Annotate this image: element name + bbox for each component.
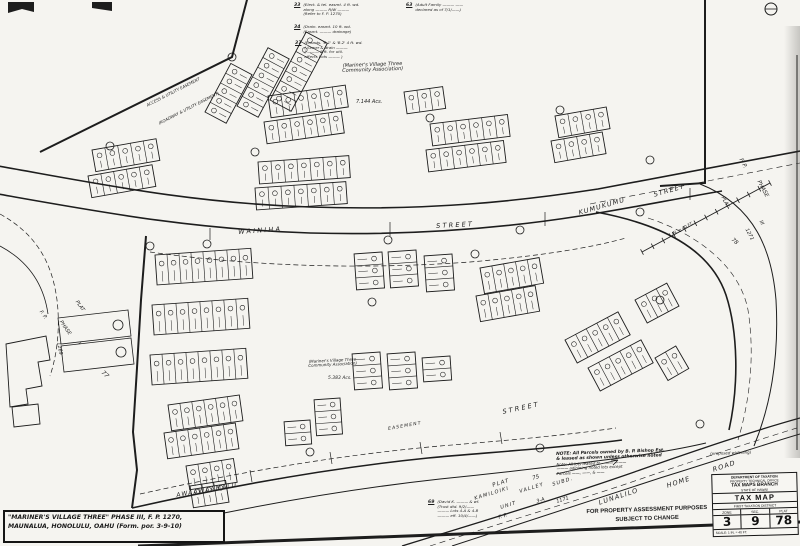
- unit-number-circle: [594, 369, 600, 375]
- unit-number-circle: [598, 112, 604, 118]
- unit-center-tick: [427, 261, 437, 262]
- parcel-row: [480, 258, 544, 294]
- unit-center-tick: [391, 257, 401, 258]
- unit-number-circle: [263, 62, 269, 68]
- unit-center-tick: [231, 438, 232, 447]
- unit-center-tick: [198, 269, 199, 279]
- parcel-divider: [423, 368, 451, 370]
- parcel-divider: [430, 88, 433, 110]
- unit-center-tick: [357, 383, 367, 384]
- unit-number-circle: [585, 114, 591, 120]
- unit-center-tick: [393, 281, 403, 282]
- parcel-divider: [589, 134, 593, 156]
- unit-center-tick: [328, 100, 329, 107]
- unit-number-circle: [190, 358, 195, 363]
- parcel-divider: [389, 376, 417, 378]
- parcel-divider: [198, 352, 200, 382]
- unit-number-circle: [404, 356, 409, 361]
- parcel-divider: [656, 289, 668, 312]
- unit-center-tick: [356, 371, 366, 372]
- unit-number-circle: [434, 91, 439, 96]
- unit-center-tick: [667, 367, 671, 375]
- zone-value: 3: [713, 515, 742, 528]
- unit-number-circle: [435, 127, 440, 132]
- parcel-divider: [527, 260, 532, 286]
- survey-hatch-tick: [747, 192, 750, 197]
- parcel-divider: [315, 115, 318, 137]
- unit-center-tick: [502, 127, 503, 134]
- note-bishop-text: NOTE: All Parcels owned by B. P. Bishop …: [556, 448, 666, 476]
- unit-center-tick: [246, 265, 247, 275]
- parcel-row: [92, 139, 160, 172]
- parcel-divider: [227, 397, 231, 423]
- unit-center-tick: [390, 359, 400, 360]
- survey-hatch-tick: [715, 209, 718, 214]
- unit-center-tick: [598, 339, 602, 347]
- parcel-divider: [323, 157, 325, 179]
- unit-number-circle: [204, 432, 209, 437]
- parcel-row: [314, 398, 342, 436]
- unit-number-circle: [281, 86, 287, 92]
- unit-number-circle: [324, 92, 329, 97]
- unit-center-tick: [272, 68, 279, 72]
- unit-center-tick: [464, 132, 465, 139]
- unit-center-tick: [251, 107, 258, 111]
- unit-center-tick: [186, 269, 187, 279]
- parcel-divider: [216, 398, 220, 424]
- parcel-row: [476, 286, 540, 322]
- unit-number-circle: [262, 166, 267, 171]
- parcel-divider: [646, 294, 658, 317]
- parcel-divider: [388, 364, 416, 366]
- unit-number-circle: [332, 426, 337, 431]
- parcel-divider: [200, 428, 204, 454]
- unit-number-circle: [569, 141, 575, 147]
- unit-number-circle: [269, 125, 274, 130]
- unit-number-circle: [148, 144, 154, 150]
- unit-number-circle: [311, 188, 316, 193]
- parcel-row: [388, 250, 418, 288]
- unit-number-circle: [288, 164, 293, 169]
- parcel-divider: [492, 266, 497, 292]
- parcel-row: [551, 132, 606, 163]
- parcel-divider: [126, 169, 130, 191]
- boundary-upper-west: [40, 0, 248, 152]
- parcel-divider: [215, 251, 217, 281]
- unit-center-tick: [194, 478, 195, 486]
- unit-number-circle: [298, 189, 303, 194]
- parcel-divider: [164, 304, 166, 334]
- scan-shadow: [784, 26, 800, 458]
- unit-center-tick: [222, 267, 223, 277]
- unit-center-tick: [484, 309, 486, 318]
- parcel-divider: [281, 186, 283, 208]
- parcel-divider: [609, 357, 621, 380]
- unit-number-circle: [214, 466, 219, 471]
- unit-center-tick: [230, 94, 237, 98]
- note-34: 34 (Drain. easmt. 10 ft. wd. (Easmt. ———…: [294, 25, 351, 34]
- unit-number-circle: [221, 88, 227, 94]
- unit-number-circle: [371, 380, 376, 385]
- unit-center-tick: [300, 72, 307, 76]
- building-footprint-annex: [12, 404, 40, 427]
- unit-number-circle: [307, 119, 312, 124]
- parcel-divider: [316, 422, 342, 424]
- unit-center-tick: [425, 101, 426, 108]
- unit-center-tick: [611, 372, 615, 380]
- unit-number-circle: [110, 150, 116, 156]
- street-lot-circle: [516, 226, 524, 234]
- unit-center-tick: [219, 113, 226, 117]
- unit-center-tick: [139, 154, 140, 161]
- unit-number-circle: [482, 147, 487, 152]
- unit-center-tick: [392, 269, 402, 270]
- unit-number-circle: [202, 358, 207, 363]
- parcel-divider: [203, 252, 205, 282]
- boundary-lower-west: [132, 236, 146, 508]
- unit-number-circle: [178, 359, 183, 364]
- parcel-divider: [236, 299, 238, 329]
- parcel-row: [422, 356, 452, 382]
- parcel-row: [387, 352, 417, 390]
- unit-center-tick: [305, 62, 312, 66]
- parcel-row: [404, 87, 446, 114]
- street-lot-circle: [203, 240, 211, 248]
- parcel-divider: [597, 323, 609, 346]
- unit-number-circle: [226, 78, 232, 84]
- unit-center-tick: [276, 107, 277, 114]
- unit-number-circle: [592, 330, 598, 336]
- unit-center-tick: [302, 103, 303, 110]
- unit-center-tick: [318, 417, 327, 418]
- parcel-divider: [328, 113, 331, 135]
- unit-number-circle: [180, 436, 185, 441]
- unit-number-circle: [156, 311, 161, 316]
- note-34-number: 34: [294, 25, 300, 34]
- street-lot-circle: [384, 236, 392, 244]
- unit-number-circle: [327, 161, 332, 166]
- unit-number-circle: [456, 150, 461, 155]
- note-33-number: 33: [294, 3, 300, 17]
- unit-number-circle: [259, 192, 264, 197]
- parcel-divider: [607, 317, 619, 340]
- unit-number-circle: [532, 264, 538, 270]
- unit-center-tick: [577, 350, 581, 358]
- unit-number-circle: [190, 469, 195, 474]
- street-lot-circle: [556, 106, 564, 114]
- unit-center-tick: [224, 104, 231, 108]
- unit-number-circle: [604, 363, 610, 369]
- unit-center-tick: [434, 161, 435, 168]
- unit-number-circle: [232, 401, 237, 406]
- parcel-divider: [212, 301, 214, 331]
- parcel-divider: [192, 402, 196, 428]
- unit-center-tick: [277, 59, 284, 63]
- unit-number-circle: [573, 116, 579, 122]
- unit-number-circle: [204, 308, 209, 313]
- unit-center-tick: [451, 134, 452, 141]
- parcel-row-outline: [424, 254, 454, 292]
- parcel-divider: [577, 136, 581, 158]
- unit-number-circle: [208, 404, 213, 409]
- parcel-row: [268, 85, 348, 118]
- parcel-divider: [227, 250, 229, 280]
- unit-number-circle: [219, 257, 224, 262]
- parcel-divider: [488, 294, 493, 320]
- parcel-divider: [204, 400, 208, 426]
- unit-number-circle: [594, 137, 600, 143]
- unit-number-circle: [243, 101, 249, 107]
- note-63-number: 63: [406, 3, 412, 12]
- unit-number-circle: [168, 310, 173, 315]
- unit-number-circle: [641, 301, 647, 307]
- unit-center-tick: [642, 355, 646, 363]
- unit-number-circle: [406, 380, 411, 385]
- parcel-divider: [333, 183, 335, 205]
- unit-center-tick: [243, 315, 244, 325]
- unit-number-circle: [671, 352, 678, 359]
- unit-center-tick: [210, 495, 211, 502]
- unit-number-circle: [144, 170, 150, 176]
- unit-center-tick: [152, 152, 153, 159]
- parcel-row-outline: [588, 340, 653, 391]
- unit-number-circle: [337, 186, 342, 191]
- parcel-divider: [336, 157, 338, 179]
- unit-center-tick: [412, 103, 413, 110]
- parcel-divider: [599, 362, 611, 385]
- unit-center-tick: [101, 161, 102, 168]
- unit-number-circle: [166, 360, 171, 365]
- title-block: DEPARTMENT OF TAXATION PROPERTY TECHNICA…: [711, 472, 799, 537]
- unit-center-tick: [340, 98, 341, 105]
- unit-number-circle: [443, 151, 448, 156]
- unit-number-circle: [243, 255, 248, 260]
- unit-number-circle: [581, 139, 587, 145]
- parcel-divider: [332, 87, 335, 109]
- unit-number-circle: [571, 341, 577, 347]
- unit-number-circle: [602, 324, 608, 330]
- parcel-divider: [281, 94, 284, 116]
- unit-number-circle: [372, 268, 377, 273]
- unit-number-circle: [168, 437, 173, 442]
- unit-center-tick: [602, 120, 603, 127]
- parcel-divider: [630, 345, 642, 368]
- unit-center-tick: [588, 344, 592, 352]
- parcel-divider: [523, 288, 528, 314]
- parcel-divider: [593, 109, 597, 131]
- parcel-divider: [271, 161, 273, 183]
- unit-center-tick: [609, 333, 613, 341]
- street-lot-circle: [646, 156, 654, 164]
- unit-center-tick: [240, 74, 247, 78]
- unit-number-circle: [231, 68, 237, 74]
- parcel-divider: [456, 121, 459, 143]
- parcel-divider: [315, 410, 341, 412]
- unit-center-tick: [324, 126, 325, 133]
- unit-number-circle: [504, 296, 510, 302]
- note-69: 69 (David K. ——— & wf. (Trust dtd. 9/2/—…: [428, 500, 479, 519]
- unit-number-circle: [272, 191, 277, 196]
- unit-center-tick: [576, 125, 577, 132]
- unit-center-tick: [241, 365, 242, 375]
- unit-number-circle: [300, 424, 305, 429]
- note-69-number: 69: [428, 500, 434, 519]
- unit-center-tick: [391, 371, 401, 372]
- left-approach-line: [0, 246, 48, 314]
- unit-center-tick: [647, 310, 651, 318]
- unit-center-tick: [217, 367, 218, 377]
- unit-center-tick: [473, 156, 474, 163]
- parcel-divider: [162, 354, 164, 384]
- unit-center-tick: [632, 361, 636, 369]
- building-footprint: [6, 336, 50, 407]
- unit-number-circle: [636, 346, 642, 352]
- note-bishop-estate: NOTE: All Parcels owned by B. P. Bishop …: [556, 448, 666, 476]
- unit-center-tick: [113, 159, 114, 166]
- unit-center-tick: [560, 152, 561, 159]
- unit-center-tick: [159, 321, 160, 331]
- road-edge-awaawaamalu-upper: [132, 440, 622, 508]
- unit-center-tick: [357, 259, 367, 260]
- unit-center-tick: [198, 497, 199, 504]
- unit-number-circle: [469, 148, 474, 153]
- unit-number-circle: [615, 358, 621, 364]
- unit-center-tick: [181, 369, 182, 379]
- unit-number-circle: [320, 118, 325, 123]
- unit-number-circle: [333, 116, 338, 121]
- unit-number-circle: [228, 429, 233, 434]
- parcel-divider: [297, 159, 299, 181]
- unit-center-tick: [317, 405, 326, 406]
- unit-number-circle: [258, 72, 264, 78]
- unit-number-circle: [499, 119, 504, 124]
- unit-number-circle: [406, 266, 411, 271]
- parcel-row-outline: [565, 312, 630, 363]
- parcel-divider: [143, 141, 147, 163]
- unit-center-tick: [234, 266, 235, 276]
- survey-hatch-tick: [694, 221, 697, 226]
- unit-number-circle: [216, 307, 221, 312]
- parcel-divider: [465, 145, 468, 167]
- parcel-row: [88, 165, 156, 198]
- parcel-divider: [515, 262, 520, 288]
- unit-number-circle: [118, 174, 124, 180]
- unit-number-circle: [294, 121, 299, 126]
- unit-number-circle: [196, 406, 201, 411]
- parcel-row: [284, 420, 312, 446]
- note-34-text: (Drain. easmt. 10 ft. wd. (Easmt. ——— dr…: [303, 25, 351, 34]
- unit-number-circle: [330, 402, 335, 407]
- street-lot-circle: [368, 298, 376, 306]
- unit-number-circle: [154, 361, 159, 366]
- parcel-row: [588, 340, 653, 391]
- unit-center-tick: [196, 443, 197, 452]
- parcel-divider: [105, 148, 109, 170]
- unit-center-tick: [429, 285, 439, 286]
- unit-center-tick: [488, 281, 490, 290]
- unit-center-tick: [288, 439, 297, 440]
- unit-center-tick: [272, 133, 273, 140]
- plat-value: 78: [770, 514, 798, 527]
- unit-center-tick: [162, 271, 163, 281]
- parcel-divider: [390, 274, 418, 276]
- unit-center-tick: [536, 273, 538, 282]
- unit-number-circle: [253, 82, 259, 88]
- parcel-divider: [307, 91, 310, 113]
- unit-number-circle: [282, 123, 287, 128]
- map-linework: [0, 0, 800, 546]
- parcel-divider: [439, 148, 442, 170]
- parcel-divider: [443, 122, 446, 144]
- parcel-divider: [188, 430, 192, 456]
- parcel-row-outline: [314, 398, 342, 436]
- parcel-divider: [469, 119, 472, 141]
- unit-center-tick: [208, 441, 209, 450]
- parcel-divider: [620, 351, 632, 374]
- street-lot-circle: [146, 242, 154, 250]
- unit-number-circle: [226, 464, 231, 469]
- unit-number-circle: [184, 408, 189, 413]
- unit-center-tick: [176, 418, 177, 427]
- survey-hatch-tick: [737, 198, 740, 203]
- parcel-divider: [586, 329, 598, 352]
- unit-number-circle: [516, 294, 522, 300]
- parcel-divider: [180, 403, 184, 429]
- parcel-divider: [294, 92, 297, 114]
- map-title-line1: "MARINER'S VILLAGE THREE" PHASE III, F. …: [8, 514, 220, 523]
- unit-center-tick: [218, 474, 219, 482]
- unit-number-circle: [484, 272, 490, 278]
- unit-number-circle: [441, 258, 446, 263]
- unit-center-tick: [223, 412, 224, 421]
- unit-center-tick: [174, 270, 175, 280]
- unit-center-tick: [438, 99, 439, 106]
- unit-center-tick: [490, 129, 491, 136]
- road-edge-right-left: [596, 212, 736, 430]
- unit-center-tick: [289, 105, 290, 112]
- unit-center-tick: [311, 128, 312, 135]
- unit-number-circle: [106, 176, 112, 182]
- acreage-top: 7.144 Acs.: [356, 100, 382, 105]
- street-lot-circle: [636, 208, 644, 216]
- unit-center-tick: [477, 130, 478, 137]
- unit-center-tick: [184, 445, 185, 454]
- unit-number-circle: [180, 309, 185, 314]
- unit-number-circle: [528, 292, 534, 298]
- parcel-divider: [239, 249, 241, 279]
- unit-number-circle: [314, 162, 319, 167]
- unit-center-tick: [210, 268, 211, 278]
- parcel-divider: [114, 171, 118, 193]
- unit-center-tick: [205, 368, 206, 378]
- parcel-divider: [210, 351, 212, 381]
- unit-center-tick: [222, 493, 223, 500]
- parcel-divider: [167, 254, 169, 284]
- unit-number-circle: [183, 259, 188, 264]
- unit-number-circle: [207, 258, 212, 263]
- unit-number-circle: [556, 144, 562, 150]
- unit-number-circle: [369, 356, 374, 361]
- unit-number-circle: [159, 261, 164, 266]
- unit-center-tick: [295, 82, 302, 86]
- parcel-row: [354, 252, 384, 290]
- unit-number-circle: [216, 430, 221, 435]
- unit-center-tick: [589, 122, 590, 129]
- unit-center-tick: [572, 150, 573, 157]
- note-33-text: (Elect. & tel. easmt. 4 ft. wd. along ——…: [303, 3, 359, 17]
- unit-number-circle: [405, 254, 410, 259]
- unit-center-tick: [262, 88, 269, 92]
